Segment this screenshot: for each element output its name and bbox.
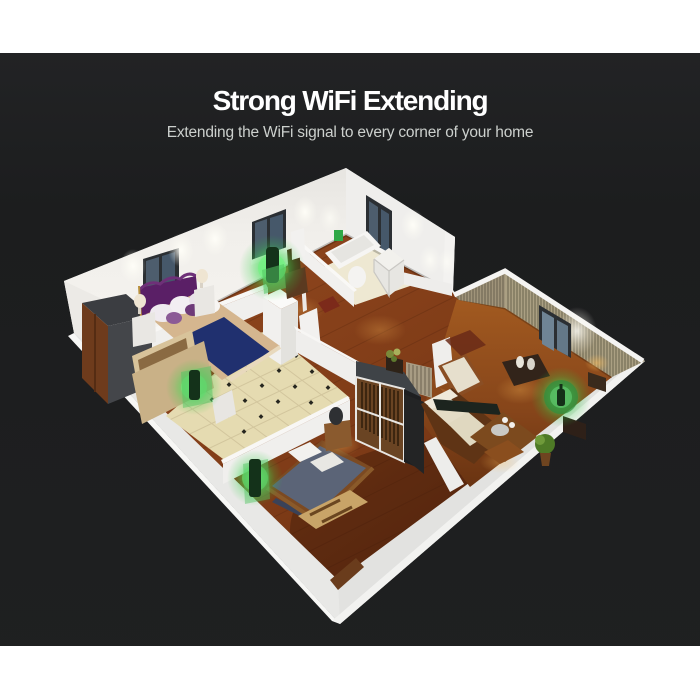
svg-text:Extending the WiFi signal to e: Extending the WiFi signal to every corne… — [167, 124, 534, 141]
svg-text:Strong WiFi Extending: Strong WiFi Extending — [213, 85, 488, 116]
